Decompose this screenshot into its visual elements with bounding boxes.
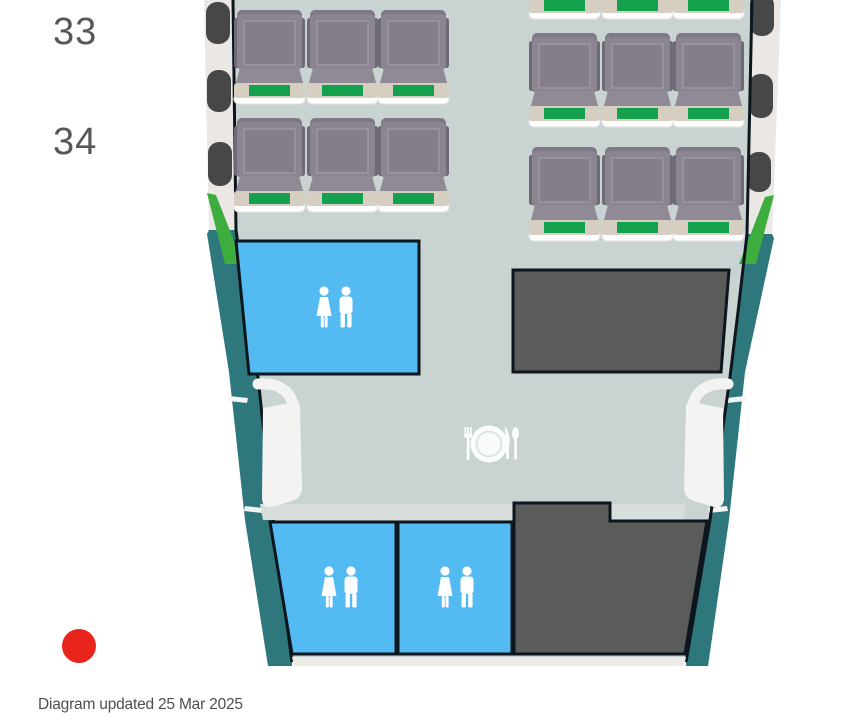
seat[interactable]	[673, 147, 744, 241]
seat[interactable]	[602, 0, 673, 19]
red-dot-marker	[62, 629, 96, 663]
seat[interactable]	[529, 147, 600, 241]
seat[interactable]	[673, 33, 744, 127]
bulkhead-strip	[260, 504, 685, 520]
aircraft-seatmap-svg	[0, 0, 843, 722]
lavatory	[398, 522, 512, 654]
cabin-window-icon	[206, 2, 230, 44]
seat[interactable]	[673, 0, 744, 19]
seat[interactable]	[378, 10, 449, 104]
row-label-33: 33	[53, 13, 97, 51]
seat[interactable]	[234, 118, 305, 212]
seat[interactable]	[529, 33, 600, 127]
seat[interactable]	[602, 147, 673, 241]
cabin-window-icon	[747, 152, 771, 192]
cabin-window-icon	[208, 142, 232, 186]
seatmap-canvas: 33 34 Diagram updated 25 Mar 2025	[0, 0, 843, 722]
row-label-34: 34	[53, 123, 97, 161]
seat[interactable]	[307, 10, 378, 104]
seat[interactable]	[529, 0, 600, 19]
tail-hull-sliver	[292, 657, 686, 666]
seat[interactable]	[602, 33, 673, 127]
galley-area	[513, 270, 729, 372]
diagram-updated-note: Diagram updated 25 Mar 2025	[38, 696, 243, 713]
cabin-window-icon	[750, 0, 774, 36]
cabin-window-icon	[207, 70, 231, 112]
seat[interactable]	[307, 118, 378, 212]
seat[interactable]	[378, 118, 449, 212]
galley-area	[514, 503, 707, 654]
seat[interactable]	[234, 10, 305, 104]
cabin-window-icon	[749, 74, 773, 118]
